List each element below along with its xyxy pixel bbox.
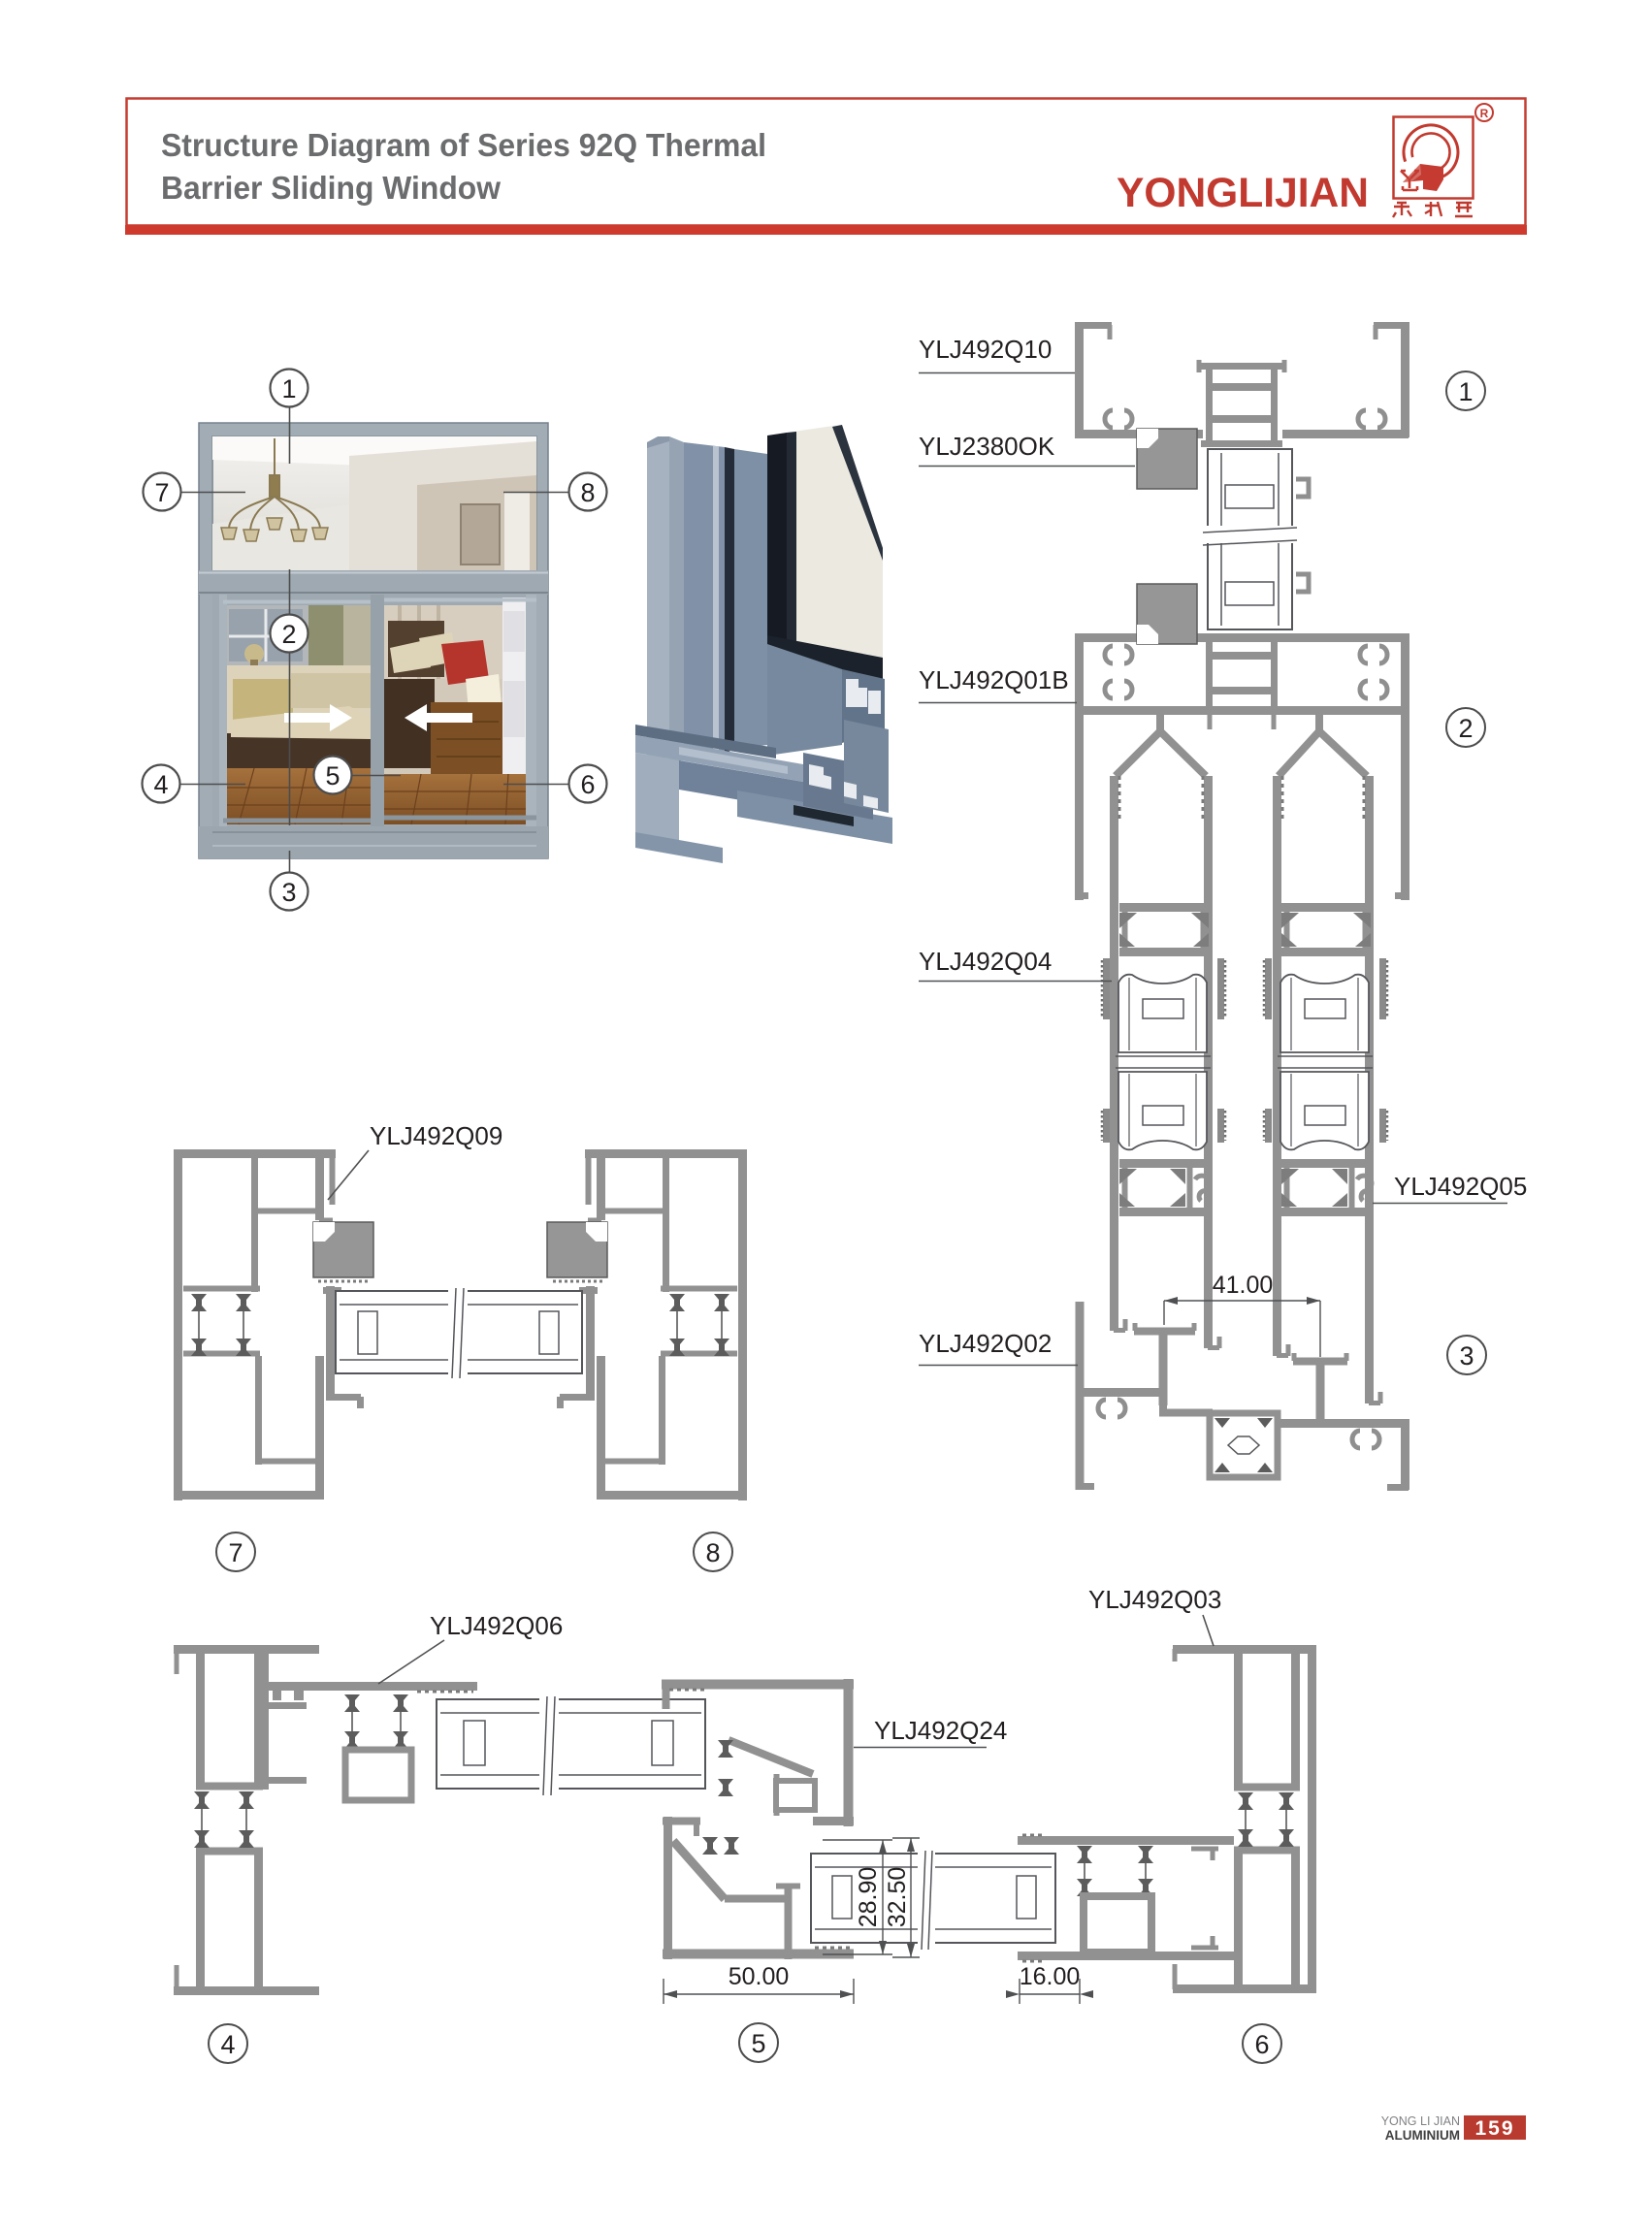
svg-text:159: 159	[1474, 2117, 1514, 2140]
svg-text:28.90: 28.90	[855, 1867, 882, 1928]
svg-text:5: 5	[751, 2029, 765, 2058]
svg-text:YLJ492Q03: YLJ492Q03	[1088, 1585, 1221, 1614]
svg-text:2: 2	[1458, 714, 1473, 743]
svg-text:YONGLIJIAN: YONGLIJIAN	[1117, 170, 1369, 216]
svg-text:7: 7	[228, 1538, 243, 1567]
svg-text:6: 6	[1254, 2030, 1269, 2059]
svg-text:7: 7	[154, 478, 169, 507]
svg-text:16.00: 16.00	[1020, 1963, 1081, 1990]
svg-text:8: 8	[705, 1538, 720, 1567]
svg-text:Barrier Sliding Window: Barrier Sliding Window	[161, 170, 501, 206]
svg-text:32.50: 32.50	[884, 1867, 911, 1928]
svg-text:6: 6	[580, 770, 595, 799]
svg-text:2: 2	[281, 620, 296, 649]
svg-text:5: 5	[325, 761, 340, 790]
svg-text:4: 4	[220, 2030, 235, 2059]
svg-text:YLJ492Q02: YLJ492Q02	[919, 1329, 1052, 1358]
svg-text:YLJ2380OK: YLJ2380OK	[919, 432, 1055, 461]
svg-text:YLJ492Q06: YLJ492Q06	[430, 1611, 563, 1640]
svg-text:YLJ492Q10: YLJ492Q10	[919, 335, 1052, 364]
svg-text:41.00: 41.00	[1213, 1272, 1274, 1299]
svg-text:YLJ492Q05: YLJ492Q05	[1394, 1172, 1527, 1201]
svg-text:YLJ492Q01B: YLJ492Q01B	[919, 665, 1069, 694]
svg-text:1: 1	[281, 374, 296, 403]
svg-text:Structure Diagram of Series 92: Structure Diagram of Series 92Q Thermal	[161, 127, 766, 163]
svg-text:YLJ492Q24: YLJ492Q24	[874, 1716, 1007, 1745]
svg-text:3: 3	[1459, 1341, 1474, 1371]
svg-text:YLJ492Q09: YLJ492Q09	[370, 1121, 502, 1150]
svg-text:ALUMINIUM: ALUMINIUM	[1385, 2128, 1460, 2143]
svg-text:4: 4	[153, 770, 168, 799]
svg-text:YONG LI JIAN: YONG LI JIAN	[1381, 2114, 1460, 2128]
svg-text:8: 8	[580, 478, 595, 507]
svg-text:50.00: 50.00	[729, 1963, 790, 1990]
svg-text:YLJ492Q04: YLJ492Q04	[919, 947, 1052, 976]
svg-text:R: R	[1480, 107, 1489, 120]
svg-text:3: 3	[281, 878, 296, 907]
svg-text:1: 1	[1458, 377, 1473, 406]
